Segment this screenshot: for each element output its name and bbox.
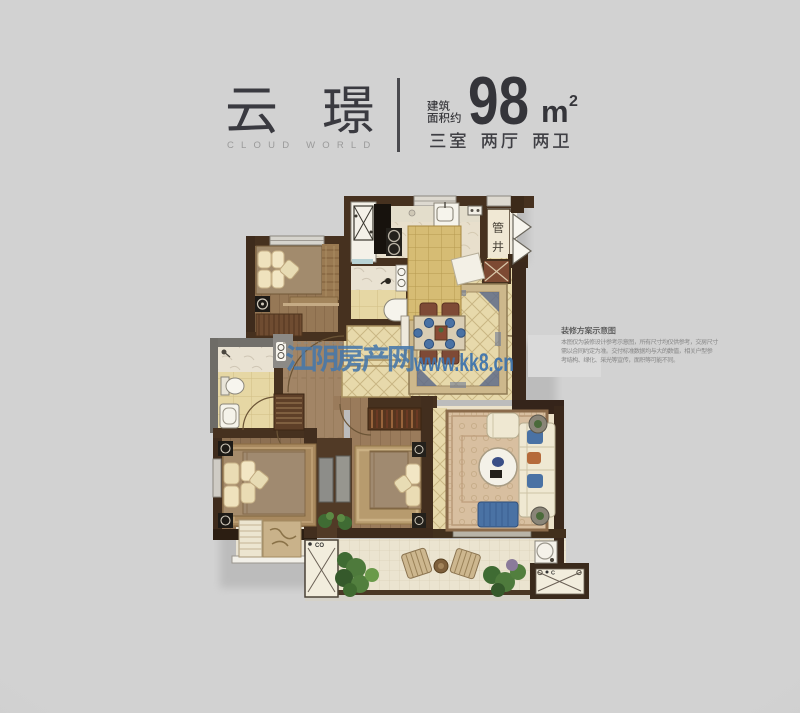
svg-text:m: m — [541, 94, 569, 129]
svg-text:2: 2 — [569, 93, 578, 110]
svg-text:CLOUD WORLD: CLOUD WORLD — [227, 140, 377, 151]
svg-text:www.kk8.cn: www.kk8.cn — [413, 349, 514, 377]
svg-text:C: C — [551, 571, 555, 577]
svg-text:CO: CO — [315, 543, 324, 549]
svg-text:98: 98 — [468, 63, 529, 139]
